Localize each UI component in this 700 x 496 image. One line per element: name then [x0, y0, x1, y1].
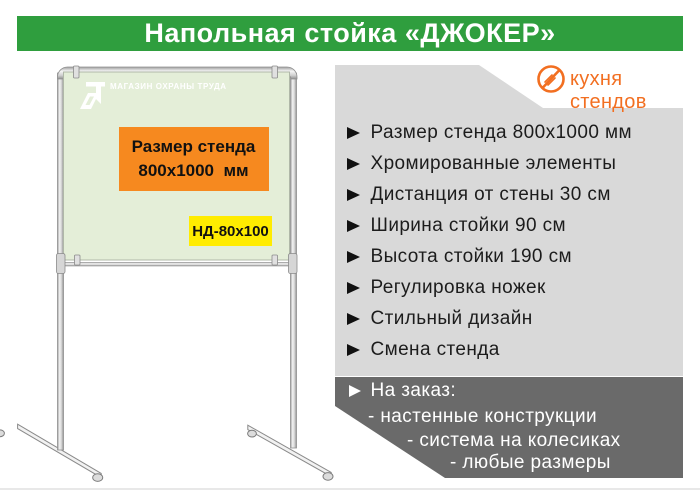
svg-text:МАГАЗИН ОХРАНЫ ТРУДА: МАГАЗИН ОХРАНЫ ТРУДА	[110, 82, 227, 91]
